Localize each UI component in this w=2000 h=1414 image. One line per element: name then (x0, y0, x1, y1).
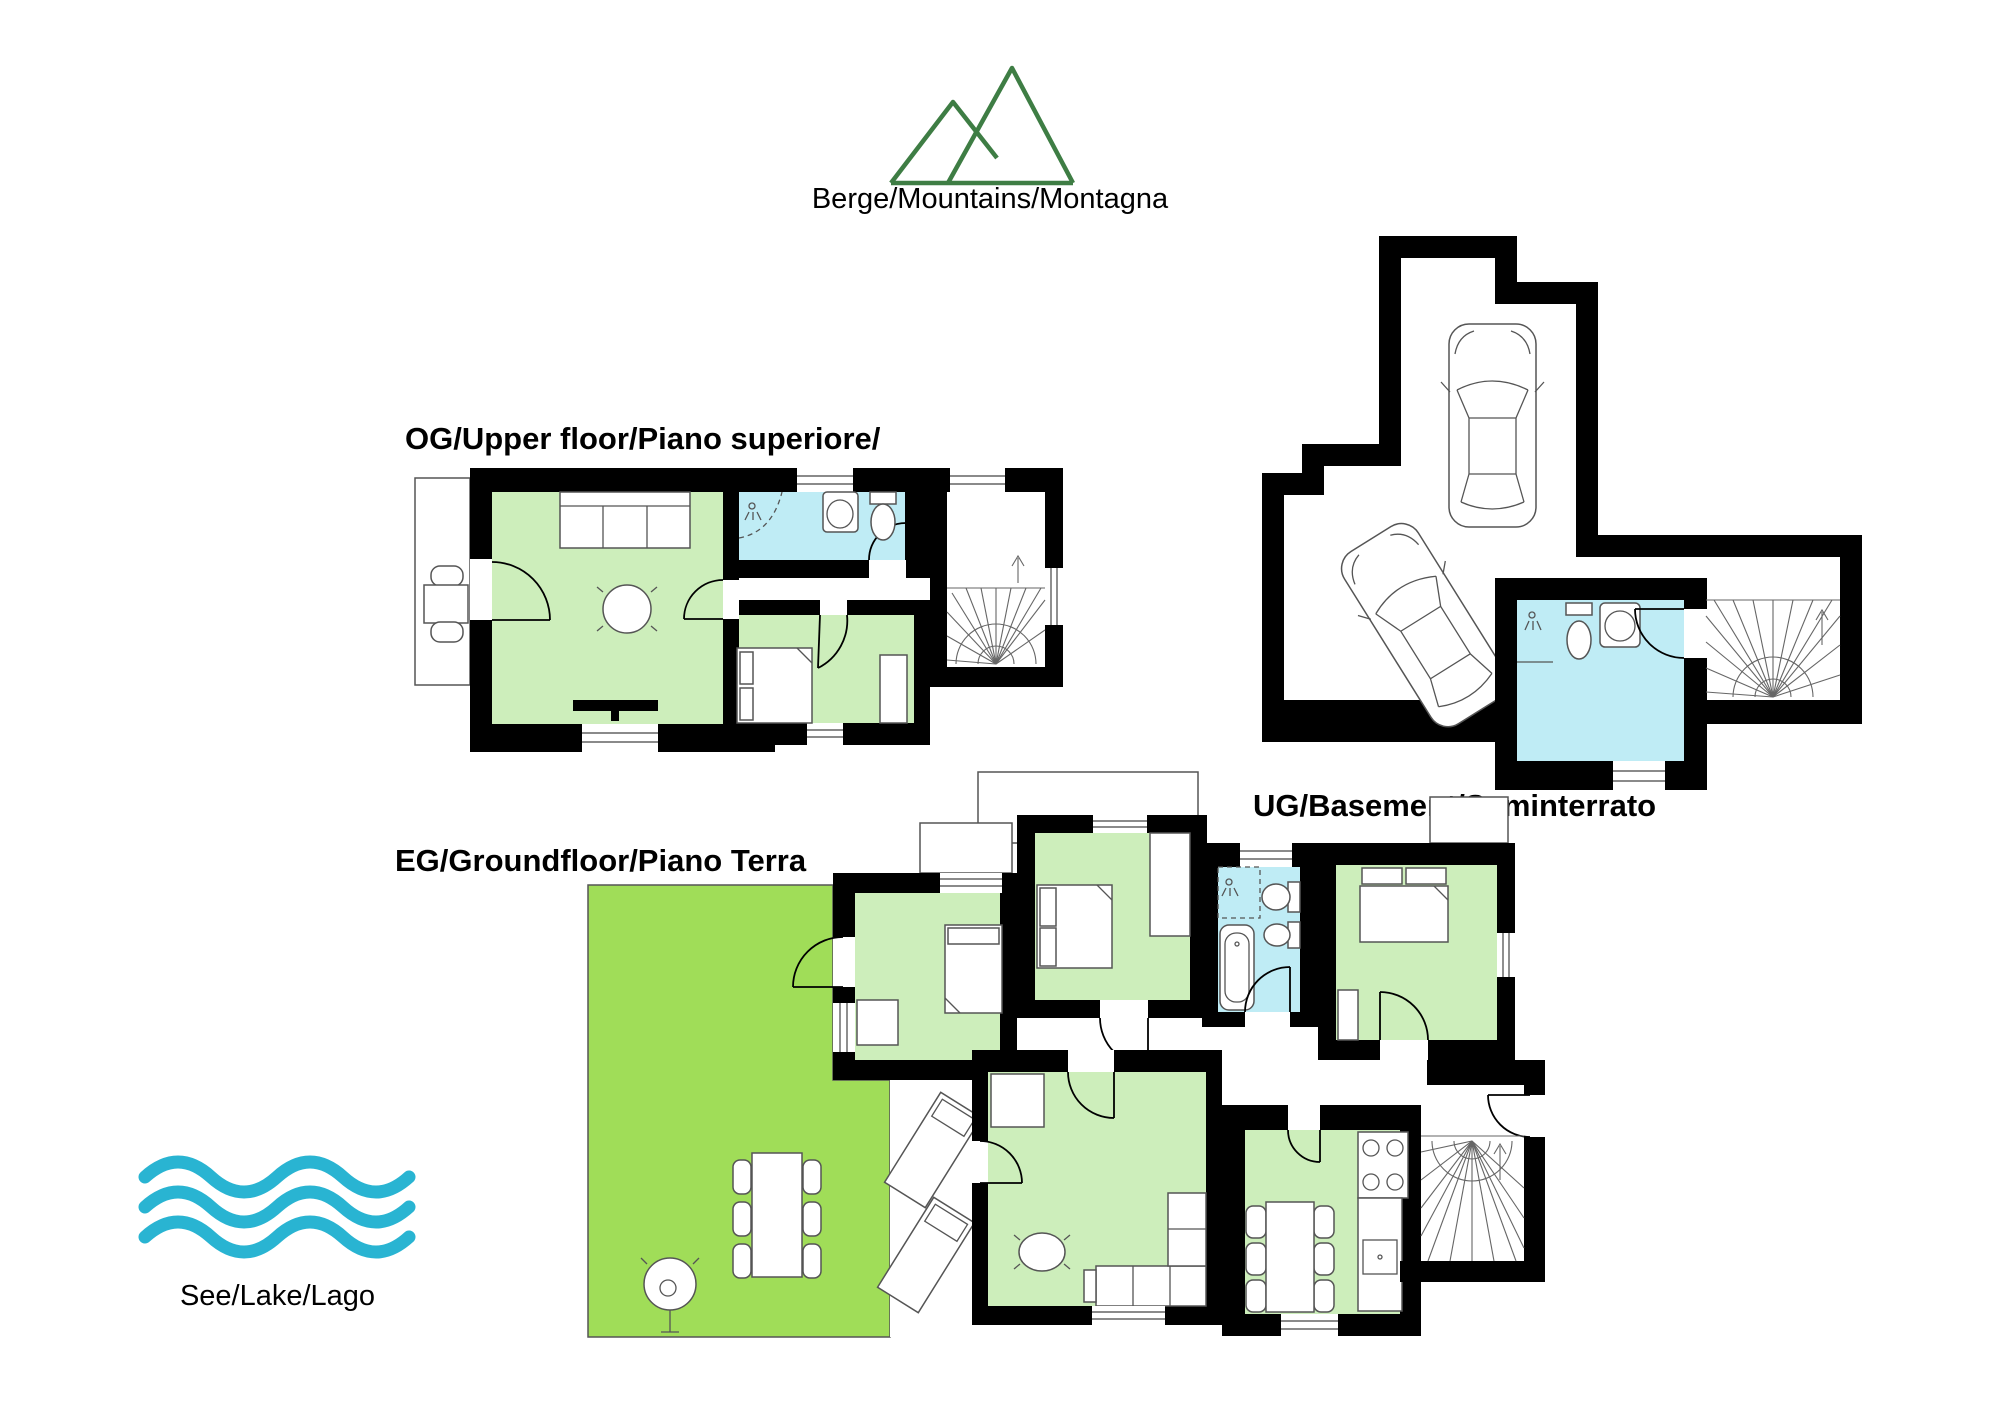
counter-icon (1358, 1198, 1402, 1311)
chair-icon (733, 1160, 751, 1194)
ug-bathroom (1495, 578, 1707, 790)
entrance-door (1488, 1095, 1530, 1137)
bed-icon (945, 925, 1002, 1013)
sofa-icon (560, 492, 690, 548)
toilet-icon (1566, 603, 1592, 659)
chair-icon (803, 1202, 821, 1236)
wardrobe-icon (857, 1000, 898, 1045)
table-icon (1266, 1202, 1314, 1312)
exterior-outline (1430, 797, 1508, 843)
car-icon (1441, 324, 1544, 527)
eg-bedroom-3 (1318, 843, 1515, 1060)
bathtub-icon (1220, 925, 1254, 1010)
table-icon (752, 1153, 802, 1277)
eg-bathroom (1202, 843, 1318, 1027)
waves-icon (145, 1162, 409, 1252)
balcony (415, 478, 470, 685)
outdoor-dining-set (733, 1153, 821, 1278)
entry-steps (1613, 761, 1665, 790)
chair-icon (733, 1244, 751, 1278)
chair-icon (431, 622, 463, 642)
wardrobe-icon (991, 1074, 1044, 1127)
og-hallway (739, 578, 930, 600)
toilet-icon (1262, 882, 1300, 912)
floorplan-page: Berge/Mountains/Montagna OG/Upper floor/… (0, 0, 2000, 1414)
chair-icon (803, 1160, 821, 1194)
bed-icon (737, 648, 812, 723)
chair-icon (1246, 1206, 1266, 1238)
eg-bedroom-2 (1017, 815, 1207, 1066)
toilet-icon (1264, 922, 1300, 948)
mountains-icon (891, 68, 1073, 183)
og-floorplan (415, 468, 1063, 752)
chair-icon (1314, 1206, 1334, 1238)
stove-icon (1358, 1132, 1408, 1198)
wardrobe-icon (1150, 833, 1190, 936)
chair-icon (1314, 1280, 1334, 1312)
eg-kitchen (1222, 1105, 1421, 1336)
chair-icon (733, 1202, 751, 1236)
exterior-outline (920, 823, 1012, 873)
dining-set (1246, 1202, 1334, 1312)
shelf-icon (1338, 990, 1358, 1040)
toilet-icon (870, 492, 896, 540)
eg-living-room (972, 1050, 1222, 1325)
table-icon (424, 585, 468, 623)
sink-icon (823, 492, 858, 532)
chair-icon (431, 566, 463, 586)
eg-floorplan (588, 772, 1545, 1337)
chair-icon (1246, 1243, 1266, 1275)
ug-floorplan (1262, 236, 1862, 790)
bed-icon (1037, 885, 1112, 968)
sink-icon (1600, 603, 1640, 647)
chair-icon (1314, 1243, 1334, 1275)
chair-icon (803, 1244, 821, 1278)
stairs-icon (1421, 1136, 1524, 1261)
eg-stairs (1400, 1136, 1545, 1282)
chair-icon (1246, 1280, 1266, 1312)
floorplans-graphic (0, 0, 2000, 1414)
wardrobe-icon (880, 655, 907, 723)
